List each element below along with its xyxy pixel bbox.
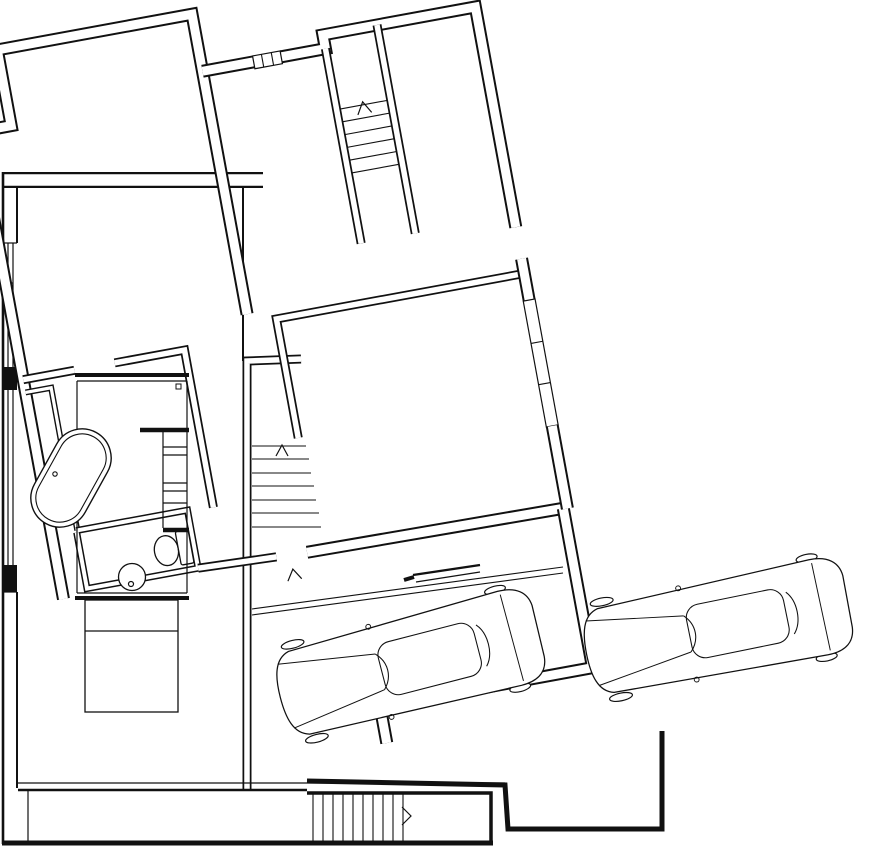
stair-direction-arrow xyxy=(356,101,372,115)
stair-step xyxy=(337,100,391,110)
stair-step xyxy=(341,125,395,135)
stair-step xyxy=(339,113,393,123)
stair-step xyxy=(346,151,400,161)
car-2 xyxy=(576,548,859,708)
top-window-frame xyxy=(253,51,283,69)
garage-entry-arrow xyxy=(286,568,302,581)
garage-top-wall xyxy=(307,505,563,555)
fixtures-and-cars xyxy=(20,375,858,750)
mirror xyxy=(675,585,681,591)
car-body xyxy=(577,554,858,702)
mirror xyxy=(694,677,700,683)
right-window-frame xyxy=(523,299,558,427)
top-window-mullion xyxy=(271,53,273,66)
floor-plan-svg xyxy=(0,0,877,846)
room-l-wall xyxy=(276,273,546,438)
cabinet xyxy=(85,600,178,712)
floor-plan xyxy=(0,0,877,846)
wall-pier xyxy=(3,367,17,390)
stair-step xyxy=(348,164,402,174)
garage-lower-wall xyxy=(307,731,662,829)
car-1 xyxy=(267,578,552,750)
car-body xyxy=(268,584,551,745)
vanity-fitting xyxy=(176,384,181,389)
top-window-mullion xyxy=(261,54,263,67)
corridor-wall xyxy=(377,25,415,234)
wall-pier xyxy=(3,565,17,592)
stair-step xyxy=(344,138,398,148)
stair-direction-arrow xyxy=(276,445,288,456)
exterior-stair-wall xyxy=(307,793,491,843)
right-window-mullion xyxy=(531,341,543,343)
right-window-mullion xyxy=(539,383,551,385)
wc-window-jamb xyxy=(404,577,414,580)
